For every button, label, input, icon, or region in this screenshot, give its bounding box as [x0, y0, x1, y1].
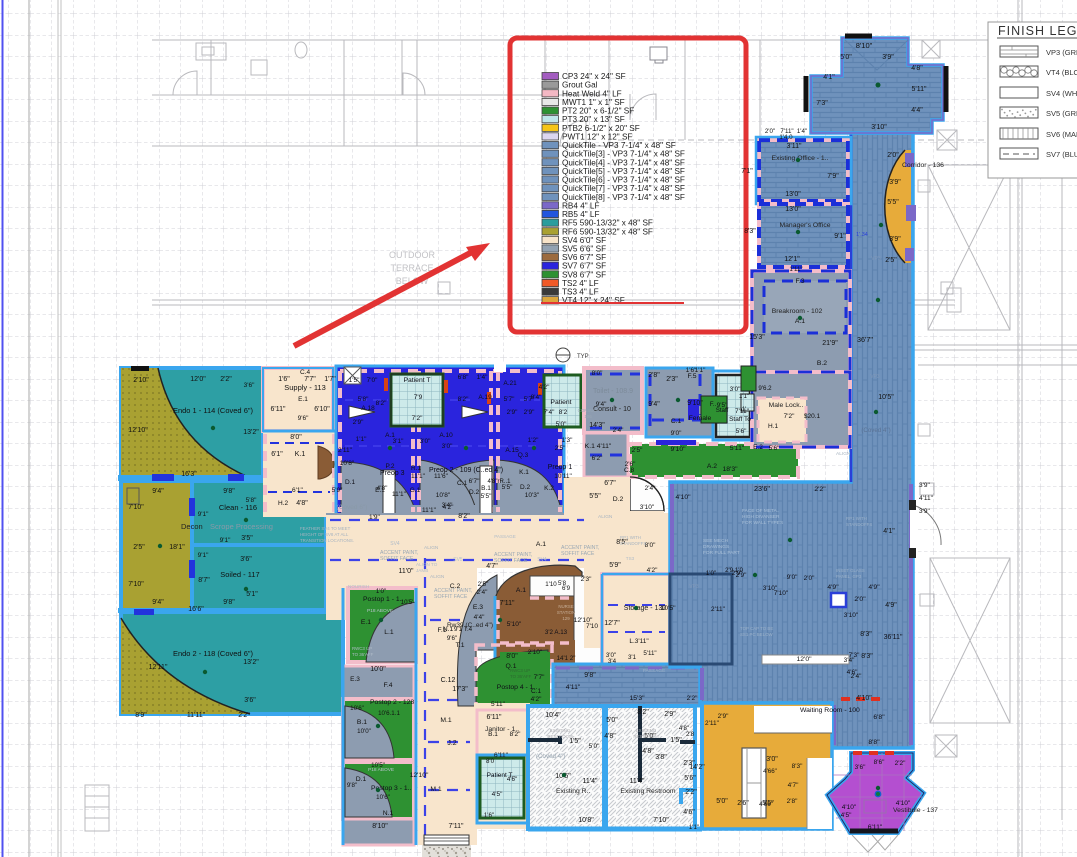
svg-text:OUTDOOR: OUTDOOR	[389, 250, 435, 260]
svg-text:N.1: N.1	[383, 810, 394, 817]
svg-text:8'10": 8'10"	[372, 823, 388, 830]
svg-text:3'1": 3'1"	[393, 438, 404, 445]
svg-text:ALIGN TO: ALIGN TO	[416, 562, 438, 567]
svg-text:2'2": 2'2"	[685, 789, 697, 796]
svg-text:4'11": 4'11"	[566, 684, 581, 691]
svg-text:23'6": 23'6"	[754, 484, 770, 493]
svg-text:2'0": 2'0"	[765, 128, 775, 135]
svg-text:R.1: R.1	[411, 465, 422, 472]
svg-text:1'6": 1'6"	[278, 376, 290, 383]
svg-text:6'8": 6'8"	[458, 374, 469, 381]
svg-text:9'1": 9'1"	[198, 552, 209, 559]
svg-text:15'3": 15'3"	[629, 695, 645, 702]
svg-text:K.2: K.2	[544, 485, 554, 492]
svg-text:ALIGN: ALIGN	[430, 574, 445, 580]
svg-text:8'2": 8'2"	[458, 396, 469, 403]
svg-text:F.5: F.5	[687, 373, 696, 380]
svg-text:2'5": 2'5"	[885, 257, 897, 264]
svg-text:PANEL, GP3: PANEL, GP3	[836, 574, 862, 579]
svg-text:K.1 4'11": K.1 4'11"	[585, 443, 612, 450]
svg-text:FOR WALL TYPES: FOR WALL TYPES	[742, 520, 783, 526]
svg-text:TO 36'AFF: TO 36'AFF	[510, 674, 532, 679]
svg-text:8'9": 8'9"	[135, 712, 147, 719]
svg-text:FEATHER SV4 TO MEET: FEATHER SV4 TO MEET	[300, 526, 351, 531]
svg-text:1'4.0: 1'4.0	[779, 134, 793, 141]
svg-text:4'1": 4'1"	[823, 74, 835, 81]
svg-text:3'6": 3'6"	[244, 382, 255, 389]
svg-text:(Coved 4"): (Coved 4")	[536, 753, 565, 760]
svg-text:5'9": 5'9"	[609, 562, 621, 569]
svg-text:4'1": 4'1"	[883, 528, 895, 535]
svg-text:9'6.2: 9'6.2	[758, 385, 772, 392]
svg-text:10'8": 10'8"	[340, 460, 355, 467]
svg-text:1': 1'	[742, 406, 747, 413]
svg-text:E.2: E.2	[753, 444, 763, 451]
svg-text:B.1: B.1	[488, 731, 498, 738]
svg-text:1'5": 1'5"	[670, 737, 682, 744]
svg-text:7'10": 7'10"	[774, 590, 789, 597]
svg-text:11'1": 11'1"	[422, 507, 437, 514]
svg-text:K.1: K.1	[519, 469, 529, 476]
svg-text:EXISTING: EXISTING	[636, 728, 657, 733]
svg-text:10'5": 10'5"	[878, 394, 894, 401]
svg-text:9'8": 9'8"	[223, 599, 235, 606]
svg-text:7'4": 7'4"	[544, 409, 555, 416]
svg-text:HIGH DIVANSER: HIGH DIVANSER	[742, 514, 780, 520]
svg-text:RF5 590-13/32" x 48" SF: RF5 590-13/32" x 48" SF	[562, 219, 653, 228]
svg-text:Patient T: Patient T	[403, 377, 430, 384]
svg-text:VT4 (BLO: VT4 (BLO	[1046, 68, 1077, 77]
svg-text:1'4": 1'4"	[477, 374, 488, 381]
svg-text:5'5": 5'5"	[762, 800, 774, 807]
svg-text:$20.1: $20.1	[804, 413, 821, 420]
svg-text:Corridor - 136: Corridor - 136	[902, 162, 944, 169]
svg-text:1'1": 1'1"	[356, 436, 367, 443]
svg-text:10'6.1.1: 10'6.1.1	[378, 710, 400, 717]
svg-text:3'6": 3'6"	[855, 764, 866, 771]
svg-text:4'7": 4'7"	[788, 782, 799, 789]
svg-text:129: 129	[562, 616, 570, 621]
svg-text:2'4": 2'4"	[477, 589, 488, 596]
svg-text:6'9: 6'9	[562, 585, 571, 592]
svg-text:E.3: E.3	[473, 604, 483, 611]
svg-text:21'9": 21'9"	[822, 340, 838, 347]
svg-text:2'2": 2'2"	[238, 712, 250, 719]
svg-text:2'0": 2'0"	[887, 152, 899, 159]
svg-text:SV5: SV5	[453, 557, 463, 563]
svg-text:8'2": 8'2"	[376, 400, 387, 407]
svg-text:4'8": 4'8"	[604, 733, 616, 740]
svg-text:A.1: A.1	[536, 541, 546, 548]
svg-text:F.4: F.4	[383, 682, 392, 689]
svg-text:3'4": 3'4"	[442, 502, 453, 509]
svg-text:Supply - 113: Supply - 113	[284, 383, 326, 392]
svg-text:K.1: K.1	[295, 451, 306, 458]
svg-text:1'.34: 1'.34	[856, 232, 868, 238]
svg-text:6'8": 6'8"	[873, 714, 885, 721]
svg-text:3'9": 3'9"	[919, 508, 930, 515]
svg-text:1'1": 1'1"	[739, 393, 749, 400]
svg-text:9'10": 9'10"	[670, 446, 686, 453]
svg-text:J.2: J.2	[447, 740, 456, 747]
svg-text:SV7 (BLU: SV7 (BLU	[1046, 150, 1077, 159]
svg-text:L.3'11": L.3'11"	[629, 638, 649, 645]
svg-text:4'8"rR..1: 4'8"rR..1	[488, 479, 512, 485]
svg-text:17'3": 17'3"	[452, 686, 468, 693]
svg-text:Preop 3: Preop 3	[380, 470, 405, 477]
svg-text:RWC3 UP: RWC3 UP	[352, 646, 372, 651]
svg-text:A.21: A.21	[503, 380, 517, 387]
svg-text:H.1: H.1	[768, 423, 779, 430]
svg-text:4'9": 4'9"	[885, 602, 897, 609]
svg-text:ALIGN: ALIGN	[836, 451, 851, 457]
svg-text:4'2": 4'2"	[647, 567, 658, 574]
svg-text:9'1": 9'1"	[198, 511, 209, 518]
svg-text:STANDOFFS: STANDOFFS	[846, 522, 872, 527]
svg-text:14'2": 14'2"	[689, 764, 705, 771]
svg-text:7'11": 7'11"	[500, 600, 515, 607]
svg-text:1'0": 1'0"	[376, 588, 386, 595]
svg-text:TOP CAP TO BE: TOP CAP TO BE	[740, 626, 773, 631]
svg-text:P18 ABOVE: P18 ABOVE	[367, 608, 393, 614]
svg-text:JAMB: JAMB	[416, 568, 428, 573]
svg-text:6'11": 6'11"	[868, 824, 883, 831]
svg-text:2'9": 2'9"	[507, 409, 518, 416]
svg-text:6'11": 6'11"	[494, 752, 509, 759]
svg-text:4'9": 4'9"	[868, 584, 880, 591]
svg-text:4'2": 4'2"	[539, 384, 550, 391]
svg-text:SOFFIT FACE: SOFFIT FACE	[434, 594, 468, 600]
svg-text:7'9": 7'9"	[827, 173, 839, 180]
svg-text:3'4: 3'4	[608, 658, 617, 665]
svg-text:9'8": 9'8"	[223, 488, 235, 495]
svg-text:5'0": 5'0"	[589, 743, 600, 750]
svg-text:Postop 2 - 128: Postop 2 - 128	[370, 699, 414, 706]
svg-text:A.1: A.1	[516, 587, 526, 594]
svg-text:1'3": 1'3"	[562, 437, 573, 444]
svg-text:2'4": 2'4"	[613, 427, 624, 434]
svg-text:2'8": 2'8"	[648, 372, 660, 379]
svg-text:E.1: E.1	[361, 619, 371, 626]
svg-text:8'3": 8'3"	[744, 228, 756, 235]
svg-text:3'0": 3'0"	[730, 386, 741, 393]
svg-text:SV5 (GRE: SV5 (GRE	[1046, 109, 1077, 118]
svg-text:C.8: C.8	[624, 467, 635, 474]
svg-text:5'10": 5'10"	[507, 621, 522, 628]
svg-text:SV4 (WHI: SV4 (WHI	[1046, 89, 1077, 98]
svg-text:F.3: F.3	[795, 278, 804, 285]
svg-text:5'5": 5'5"	[502, 484, 513, 491]
svg-text:6'7": 6'7"	[469, 478, 480, 485]
svg-text:DRAWINGS: DRAWINGS	[703, 544, 729, 550]
svg-text:2'9": 2'9"	[664, 711, 676, 718]
svg-text:9'1": 9'1"	[834, 233, 846, 240]
svg-text:8'3": 8'3"	[861, 653, 873, 660]
svg-text:Clean - 116: Clean - 116	[219, 503, 257, 512]
svg-text:PASSAGE: PASSAGE	[494, 534, 516, 539]
svg-text:16'3": 16'3"	[181, 471, 197, 478]
svg-text:4'9": 4'9"	[827, 584, 839, 591]
svg-text:2'8: 2'8	[686, 731, 695, 738]
svg-text:A.1: A.1	[385, 432, 395, 439]
svg-text:9'4": 9'4"	[648, 401, 660, 408]
svg-text:11'4": 11'4"	[630, 778, 645, 785]
svg-text:10'11": 10'11"	[554, 473, 572, 480]
svg-text:8'2: 8'2	[559, 409, 568, 416]
svg-text:11'0": 11'0"	[399, 568, 414, 575]
svg-text:SS1 PC BELOW: SS1 PC BELOW	[740, 632, 774, 637]
svg-text:ALIGN: ALIGN	[424, 545, 439, 551]
svg-text:NOURISH: NOURISH	[348, 584, 369, 589]
svg-text:12'1": 12'1"	[784, 256, 800, 263]
svg-text:B.2: B.2	[817, 360, 827, 367]
svg-text:Q.3: Q.3	[518, 452, 529, 459]
svg-text:9'8": 9'8"	[347, 782, 357, 789]
svg-text:5'5": 5'5"	[481, 493, 492, 500]
svg-text:VP3: VP3	[870, 374, 880, 380]
svg-text:7'1": 7'1"	[741, 168, 753, 175]
svg-text:CONSULT: CONSULT	[578, 408, 599, 413]
svg-text:5'1": 5'1"	[246, 591, 258, 598]
svg-text:9'1": 9'1"	[220, 537, 231, 544]
svg-text:2'2": 2'2"	[895, 760, 906, 767]
svg-text:4'4": 4'4"	[474, 614, 485, 621]
svg-text:Staff: Staff	[716, 407, 729, 414]
svg-text:Manager's Office: Manager's Office	[779, 222, 830, 229]
svg-text:7'7": 7'7"	[534, 674, 545, 681]
svg-text:Patient: Patient	[550, 399, 571, 406]
svg-text:4'10": 4'10"	[675, 494, 691, 501]
svg-text:Toilet - 108.9: Toilet - 108.9	[593, 388, 633, 395]
svg-text:5'6": 5'6"	[736, 428, 747, 435]
svg-text:2'3": 2'3"	[581, 576, 592, 583]
svg-text:2'9": 2'9"	[718, 713, 729, 720]
svg-text:2'5": 2'5"	[632, 447, 643, 454]
svg-text:3'2 A.13: 3'2 A.13	[545, 629, 568, 636]
svg-text:Breakroom - 102: Breakroom - 102	[772, 308, 823, 315]
svg-text:2'11": 2'11"	[338, 447, 353, 454]
svg-text:Endo 2 - 118 (Coved 6"): Endo 2 - 118 (Coved 6")	[173, 649, 254, 658]
svg-text:5'6": 5'6"	[769, 445, 780, 452]
svg-text:8'0": 8'0"	[506, 653, 518, 660]
svg-text:H.2: H.2	[278, 500, 289, 507]
svg-text:5'0": 5'0"	[606, 717, 618, 724]
svg-text:13'2": 13'2"	[243, 659, 259, 666]
svg-text:9'4": 9'4"	[596, 401, 607, 408]
svg-text:TO 36'AFF: TO 36'AFF	[352, 652, 374, 657]
svg-text:5'9": 5'9"	[332, 487, 343, 494]
svg-text:1'5": 1'5"	[349, 377, 360, 384]
svg-text:106: 106	[584, 414, 592, 419]
svg-text:1'9": 1'9"	[369, 514, 380, 521]
svg-text:9'4": 9'4"	[152, 488, 164, 495]
svg-text:M.1: M.1	[430, 786, 442, 793]
svg-text:5'11": 5'11"	[912, 86, 927, 93]
svg-text:9'10": 9'10"	[687, 400, 703, 407]
svg-text:9'0": 9'0"	[671, 430, 682, 437]
svg-text:1'1": 1'1"	[689, 824, 699, 831]
svg-text:3'10": 3'10"	[871, 124, 887, 131]
svg-text:SV6 (MAR: SV6 (MAR	[1046, 130, 1077, 139]
svg-text:8'3": 8'3"	[860, 631, 872, 638]
svg-text:6'7": 6'7"	[604, 480, 616, 487]
svg-text:A.10: A.10	[439, 432, 453, 439]
svg-text:2'2": 2'2"	[814, 486, 826, 493]
svg-text:SV4: SV4	[390, 541, 400, 547]
svg-text:10'0": 10'0"	[370, 666, 386, 673]
svg-text:2'9": 2'9"	[524, 409, 535, 416]
svg-text:STANDOFFS: STANDOFFS	[620, 541, 646, 546]
svg-text:6'11": 6'11"	[487, 714, 502, 721]
svg-text:10'6": 10'6"	[376, 794, 390, 801]
svg-text:7'10": 7'10"	[128, 504, 144, 511]
svg-text:8'7": 8'7"	[198, 577, 210, 584]
svg-text:1'5": 1'5"	[569, 738, 581, 745]
svg-text:3'1: 3'1	[628, 654, 637, 661]
svg-text:C.2: C.2	[450, 583, 461, 590]
svg-text:9'0": 9'0"	[787, 574, 798, 581]
svg-text:10'5": 10'5"	[660, 605, 676, 612]
svg-text:8'8": 8'8"	[868, 739, 880, 746]
svg-text:D.2: D.2	[613, 496, 624, 503]
svg-text:3'8": 3'8"	[655, 754, 667, 761]
svg-text:D.1: D.1	[356, 776, 367, 783]
svg-text:12'11": 12'11"	[149, 664, 168, 671]
svg-text:L.1: L.1	[384, 629, 394, 636]
svg-text:11'11": 11'11"	[187, 712, 206, 719]
svg-text:Decon: Decon	[181, 522, 203, 531]
svg-text:2'9": 2'9"	[732, 570, 743, 577]
svg-text:7'7": 7'7"	[304, 376, 316, 383]
svg-text:10'8": 10'8"	[436, 492, 451, 499]
svg-text:36'11": 36'11"	[884, 634, 903, 641]
svg-text:T.4: T.4	[464, 626, 473, 633]
svg-text:(Coved 4"): (Coved 4")	[861, 427, 890, 434]
svg-text:6'2": 6'2"	[592, 455, 603, 462]
svg-text:2'3": 2'3"	[666, 376, 678, 383]
svg-text:FOR FULL PART: FOR FULL PART	[703, 550, 740, 556]
svg-text:16'6": 16'6"	[188, 606, 204, 613]
svg-text:SOFFIT FACE: SOFFIT FACE	[380, 556, 414, 562]
svg-text:14'1 2": 14'1 2"	[557, 655, 576, 662]
svg-text:TS3: TS3	[626, 556, 635, 561]
svg-text:4'8": 4'8"	[296, 500, 308, 507]
svg-text:3'6": 3'6"	[240, 556, 252, 563]
svg-text:36'7": 36'7"	[857, 335, 873, 344]
svg-text:C.1: C.1	[531, 688, 542, 695]
svg-text:5'0": 5'0"	[840, 54, 852, 61]
svg-text:E.1: E.1	[298, 396, 308, 403]
svg-text:15'3": 15'3"	[749, 334, 765, 341]
svg-text:Soiled - 117: Soiled - 117	[220, 570, 259, 579]
svg-text:Postop 1 - 1..: Postop 1 - 1..	[363, 596, 404, 603]
svg-text:2'0": 2'0"	[804, 575, 815, 582]
svg-text:2'2": 2'2"	[220, 376, 232, 383]
svg-text:3'9": 3'9"	[889, 179, 901, 186]
svg-text:10'0": 10'0"	[357, 728, 371, 735]
svg-text:7'9: 7'9	[414, 394, 423, 401]
svg-text:11'4": 11'4"	[583, 778, 598, 785]
svg-text:8'3": 8'3"	[792, 763, 803, 770]
svg-text:18'3": 18'3"	[722, 466, 738, 473]
svg-text:B.1: B.1	[481, 485, 491, 492]
svg-text:8'0": 8'0"	[592, 370, 603, 377]
svg-text:C.1: C.1	[457, 480, 468, 487]
svg-text:2'0": 2'0"	[854, 596, 866, 603]
svg-text:Existing R..: Existing R..	[556, 788, 590, 795]
svg-text:Existing Restroom: Existing Restroom	[620, 788, 675, 795]
svg-text:6'11": 6'11"	[271, 406, 286, 413]
svg-text:ALIGN: ALIGN	[598, 514, 613, 520]
svg-text:Heat Weld 4" LF: Heat Weld 4" LF	[562, 89, 622, 98]
svg-text:C.12: C.12	[441, 677, 456, 684]
svg-text:7'10": 7'10"	[653, 817, 669, 824]
svg-text:12'10": 12'10"	[410, 772, 429, 779]
svg-text:13'0": 13'0"	[785, 191, 801, 198]
svg-text:2'8": 2'8"	[787, 798, 798, 805]
svg-text:7'0": 7'0"	[367, 377, 378, 384]
svg-text:4'8": 4'8"	[642, 748, 654, 755]
svg-text:D.2: D.2	[520, 484, 531, 491]
svg-text:P18 ABOVE: P18 ABOVE	[368, 767, 394, 773]
svg-text:TYP: TYP	[577, 354, 589, 360]
svg-text:SOFFIT FACE: SOFFIT FACE	[494, 558, 528, 564]
svg-text:1'11": 1'11"	[789, 266, 802, 273]
svg-text:SV7 6'7" SF: SV7 6'7" SF	[562, 262, 606, 271]
svg-text:RESTROOM: RESTROOM	[547, 734, 573, 739]
svg-text:8'4": 8'4"	[531, 394, 542, 401]
svg-text:18'1": 18'1"	[169, 544, 185, 551]
svg-text:11'1": 11'1"	[411, 473, 426, 480]
svg-text:M.1: M.1	[440, 717, 452, 724]
svg-text:NURSE: NURSE	[558, 604, 573, 609]
svg-text:11'1": 11'1"	[392, 491, 407, 498]
svg-text:5'8": 5'8"	[358, 396, 369, 403]
svg-text:9'6": 9'6"	[447, 635, 457, 642]
svg-text:(Coved 6"): (Coved 6")	[337, 504, 368, 511]
svg-text:Vestibule - 137: Vestibule - 137	[893, 807, 938, 814]
svg-text:5'5": 5'5"	[887, 199, 899, 206]
svg-text:12'7": 12'7"	[604, 620, 620, 627]
svg-text:C.4: C.4	[300, 369, 311, 376]
svg-text:FACE OF META..: FACE OF META..	[742, 508, 780, 514]
svg-text:4'8": 4'8"	[911, 65, 923, 72]
svg-text:STATION: STATION	[557, 610, 575, 615]
svg-text:SOFFIT FACE: SOFFIT FACE	[561, 551, 595, 557]
svg-text:A.2: A.2	[707, 463, 717, 470]
svg-text:Preop 1: Preop 1	[548, 464, 573, 471]
svg-text:2'5": 2'5"	[555, 445, 566, 452]
svg-text:HEIGHT OF SV8 AT ALL: HEIGHT OF SV8 AT ALL	[300, 532, 349, 537]
svg-text:E.3: E.3	[350, 676, 360, 683]
svg-text:10'3": 10'3"	[525, 492, 540, 499]
svg-text:3'9": 3'9"	[919, 482, 930, 489]
svg-text:2'4": 2'4"	[645, 485, 656, 492]
svg-text:Female: Female	[689, 415, 712, 422]
svg-text:14'3": 14'3"	[589, 422, 605, 429]
svg-text:2'5": 2'5"	[478, 581, 489, 588]
svg-text:TERRACE: TERRACE	[390, 263, 433, 273]
svg-text:3'6": 3'6"	[244, 697, 256, 704]
svg-text:2'11": 2'11"	[705, 720, 720, 727]
svg-text:QuickTile[6] - VP3 7-1/4" x 4: QuickTile[6] - VP3 7-1/4" x 48" SF	[562, 176, 685, 185]
svg-text:D.2: D.2	[469, 489, 480, 496]
svg-text:8'2": 8'2"	[510, 731, 521, 738]
svg-text:11'6": 11'6"	[434, 473, 449, 480]
svg-text:2'11": 2'11"	[711, 606, 726, 613]
svg-text:2'2": 2'2"	[687, 695, 698, 702]
svg-text:Staff To: Staff To	[729, 416, 751, 423]
